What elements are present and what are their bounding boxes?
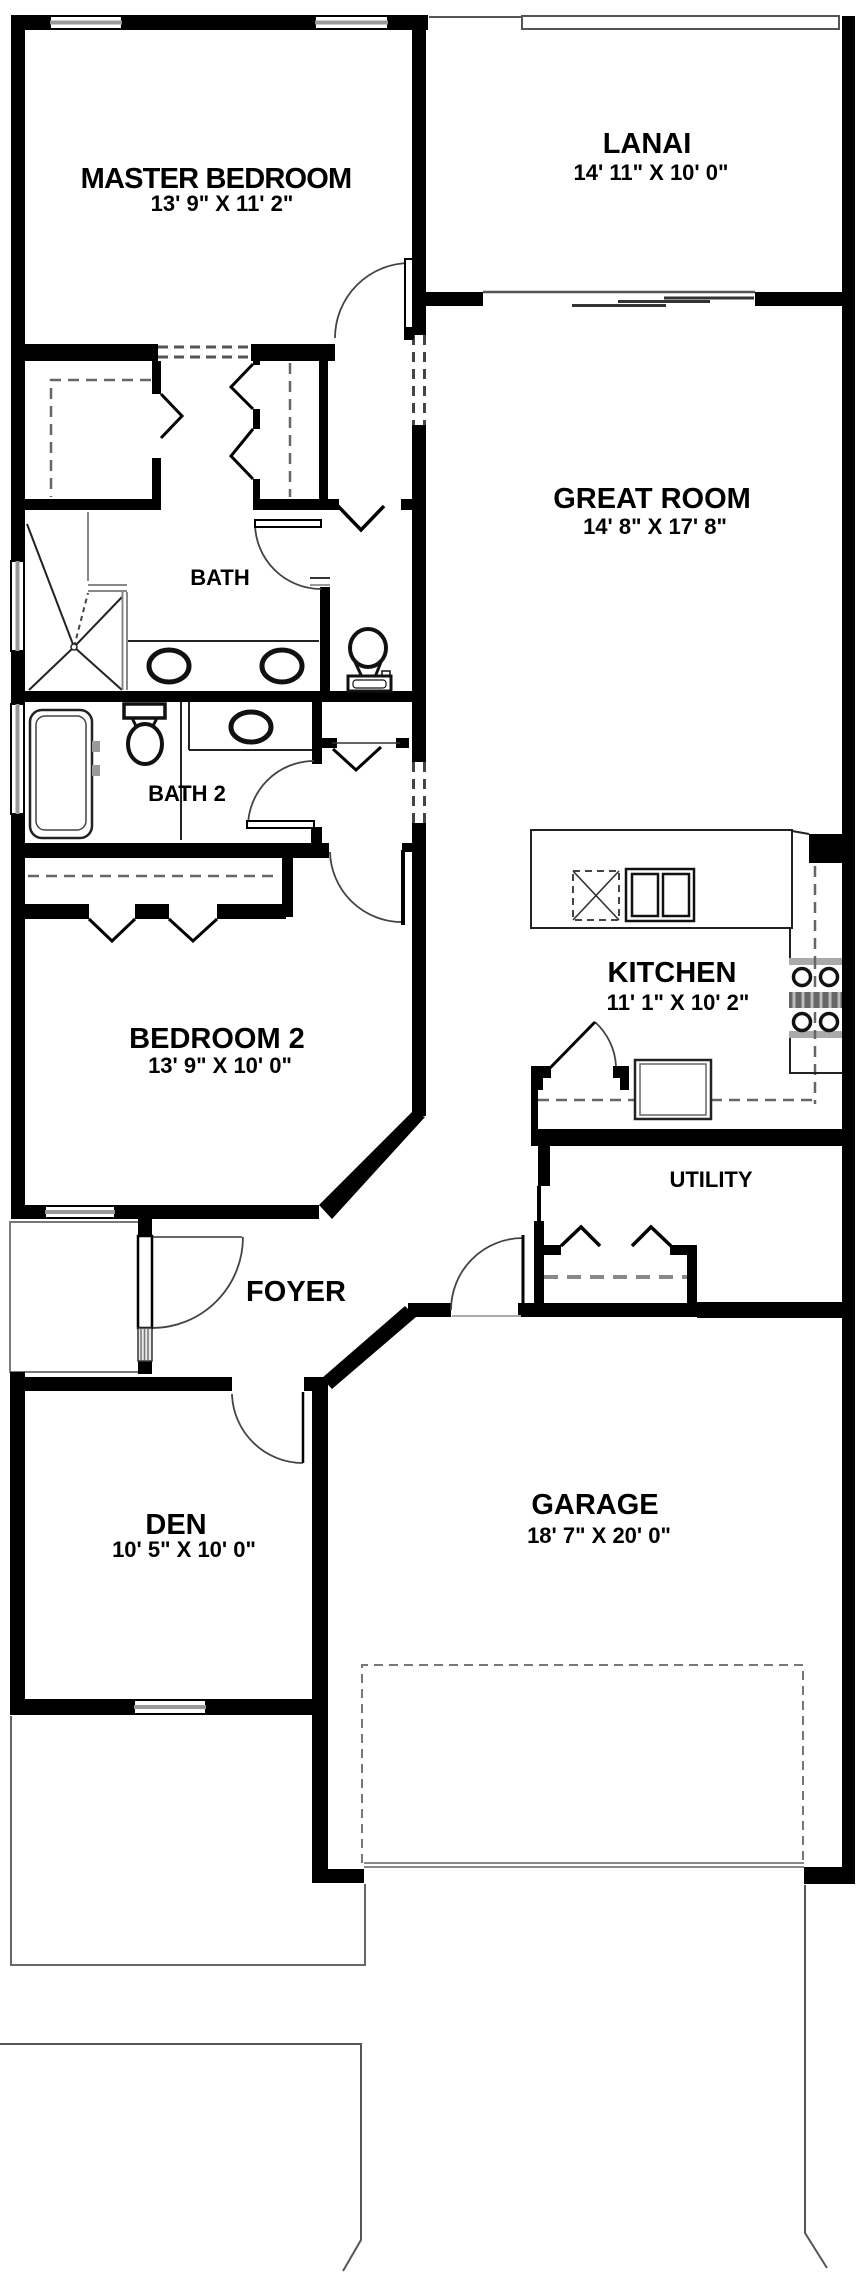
svg-text:BATH: BATH [190,565,249,590]
svg-text:11' 1" X 10' 2": 11' 1" X 10' 2" [607,990,750,1015]
svg-text:13' 9" X 11' 2": 13' 9" X 11' 2" [151,191,294,216]
svg-text:LANAI: LANAI [603,128,692,160]
svg-text:13' 9" X 10' 0": 13' 9" X 10' 0" [148,1053,292,1078]
svg-text:18' 7" X 20' 0": 18' 7" X 20' 0" [527,1523,671,1548]
svg-text:BEDROOM 2: BEDROOM 2 [129,1023,305,1055]
svg-text:FOYER: FOYER [246,1276,346,1308]
svg-text:10' 5" X 10' 0": 10' 5" X 10' 0" [112,1537,256,1562]
svg-text:14' 11" X 10' 0": 14' 11" X 10' 0" [574,160,729,185]
svg-text:BATH 2: BATH 2 [148,781,226,806]
svg-text:UTILITY: UTILITY [669,1167,752,1192]
svg-text:14' 8" X 17' 8": 14' 8" X 17' 8" [583,514,727,539]
svg-text:GREAT ROOM: GREAT ROOM [553,483,751,515]
svg-text:KITCHEN: KITCHEN [608,957,737,989]
svg-text:GARAGE: GARAGE [531,1489,658,1521]
